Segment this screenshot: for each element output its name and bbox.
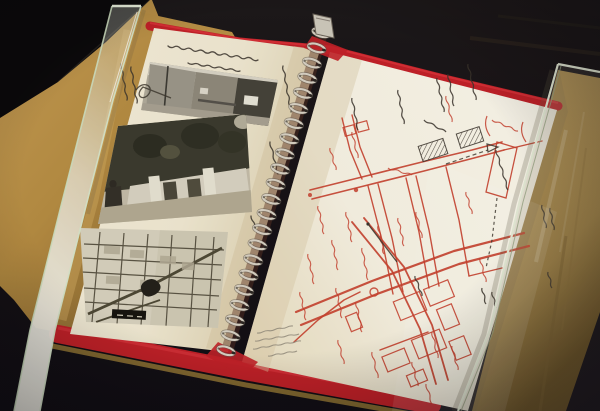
photograph bbox=[0, 0, 600, 411]
scene-svg bbox=[0, 0, 600, 411]
photo-warm-tone bbox=[0, 0, 600, 411]
